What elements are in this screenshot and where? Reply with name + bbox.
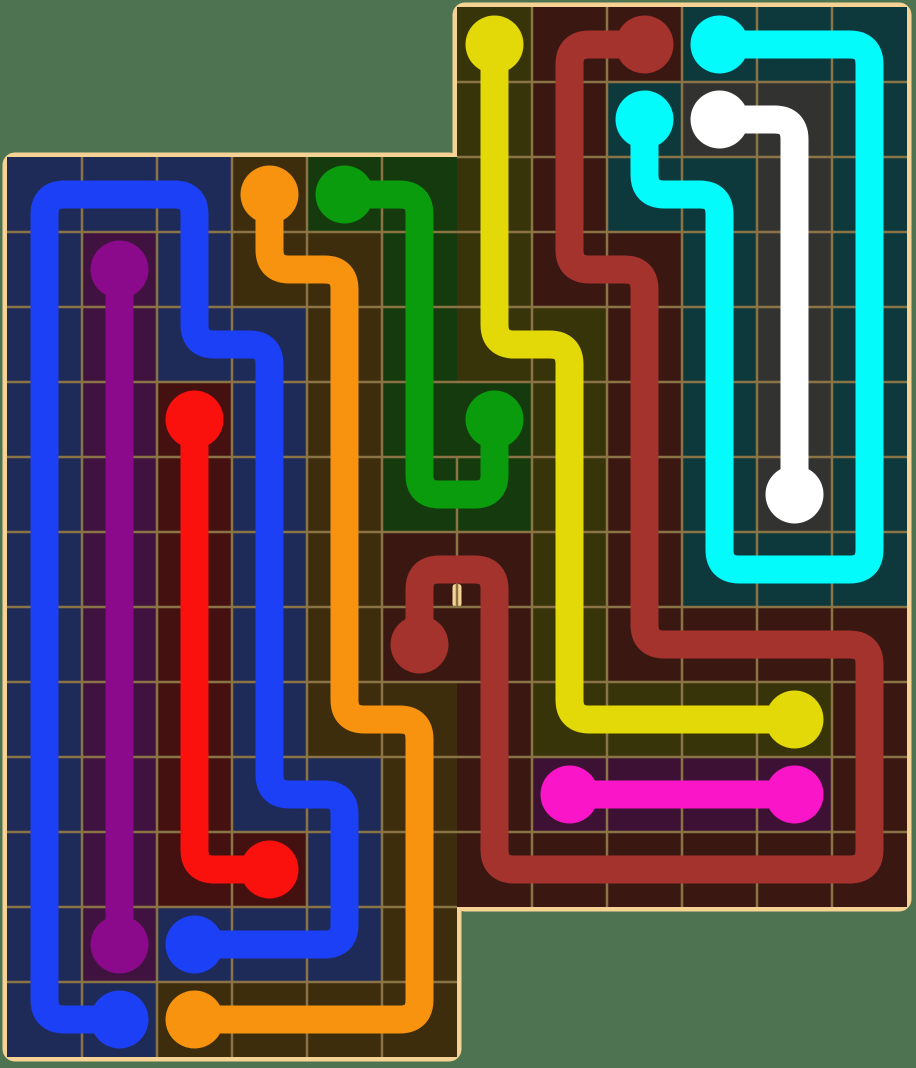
flow-green-endpoint-end[interactable] <box>466 391 524 449</box>
flow-blue-endpoint-start[interactable] <box>166 916 224 974</box>
flow-red-endpoint-start[interactable] <box>166 391 224 449</box>
flow-green-endpoint-start[interactable] <box>316 166 374 224</box>
flow-magenta-endpoint-start[interactable] <box>541 766 599 824</box>
flow-cyan-endpoint-start[interactable] <box>691 16 749 74</box>
flow-magenta-endpoint-end[interactable] <box>766 766 824 824</box>
flow-dark-red-endpoint-end[interactable] <box>391 616 449 674</box>
puzzle-board[interactable] <box>0 0 916 1068</box>
flow-cyan-endpoint-end[interactable] <box>616 91 674 149</box>
flow-purple-endpoint-start[interactable] <box>91 241 149 299</box>
flow-white-endpoint-start[interactable] <box>691 91 749 149</box>
flow-orange-endpoint-start[interactable] <box>241 166 299 224</box>
flow-purple-endpoint-end[interactable] <box>91 916 149 974</box>
flow-orange-endpoint-end[interactable] <box>166 991 224 1049</box>
flow-white-endpoint-end[interactable] <box>766 466 824 524</box>
game-stage <box>0 0 916 1068</box>
flow-yellow-endpoint-end[interactable] <box>766 691 824 749</box>
flow-red-endpoint-end[interactable] <box>241 841 299 899</box>
flow-yellow-endpoint-start[interactable] <box>466 16 524 74</box>
flow-blue-endpoint-end[interactable] <box>91 991 149 1049</box>
flow-dark-red-endpoint-start[interactable] <box>616 16 674 74</box>
